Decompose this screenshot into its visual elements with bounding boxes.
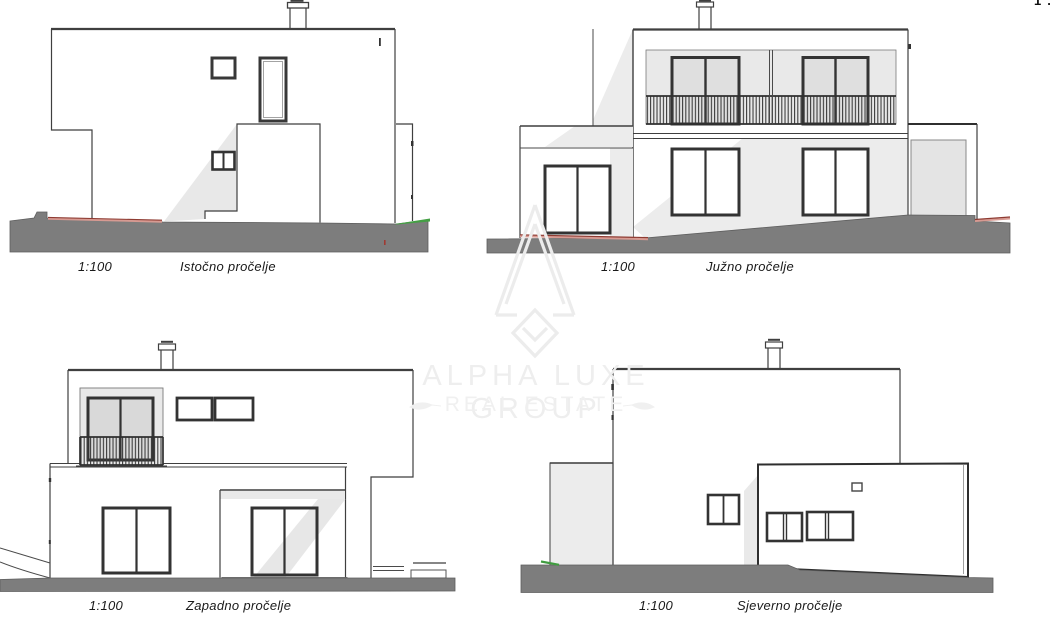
south-balcony-railing bbox=[646, 96, 896, 124]
east-double-window bbox=[213, 152, 235, 170]
elevation-sheet: { "sheet": { "type": "architectural-elev… bbox=[0, 0, 1064, 621]
west-title-label: Zapadno pročelje bbox=[186, 598, 291, 613]
south-title-label: Južno pročelje bbox=[706, 259, 794, 274]
west-porch bbox=[220, 490, 346, 578]
east-wall-ticks bbox=[379, 38, 414, 199]
elevation-south-drawing bbox=[480, 0, 1020, 258]
north-chimney bbox=[766, 340, 783, 369]
west-chimney bbox=[159, 342, 176, 370]
east-scale-label: 1:100 bbox=[78, 259, 112, 274]
elevation-west-drawing bbox=[0, 330, 470, 600]
west-window-lower bbox=[103, 508, 170, 573]
west-small-window-2 bbox=[215, 398, 253, 420]
east-wall-shadow bbox=[164, 124, 237, 222]
west-scale-label: 1:100 bbox=[89, 598, 123, 613]
south-left-wing bbox=[520, 126, 633, 238]
north-corner-shadow bbox=[744, 475, 758, 567]
north-title-label: Sjeverno pročelje bbox=[737, 598, 843, 613]
south-side-face-shading bbox=[593, 29, 633, 126]
south-chimney bbox=[697, 1, 714, 29]
east-chimney bbox=[288, 1, 309, 29]
south-scale-label: 1:100 bbox=[601, 259, 635, 274]
north-left-wing bbox=[550, 463, 613, 566]
west-small-window-1 bbox=[177, 398, 212, 420]
north-annex-window-1 bbox=[767, 513, 802, 541]
south-garage-wing bbox=[908, 44, 977, 219]
north-window-main bbox=[708, 495, 739, 524]
clipped-corner-text: 1. bbox=[1034, 0, 1057, 8]
east-small-window bbox=[212, 58, 235, 78]
south-window-lower-right bbox=[803, 149, 868, 215]
east-tall-window bbox=[260, 58, 286, 121]
west-balcony bbox=[76, 388, 167, 467]
west-terrain-lines bbox=[0, 548, 50, 578]
elevation-north-drawing bbox=[490, 330, 1010, 600]
east-title-label: Istočno pročelje bbox=[180, 259, 276, 274]
west-ground bbox=[0, 578, 455, 592]
north-scale-label: 1:100 bbox=[639, 598, 673, 613]
south-window-lower-left bbox=[672, 149, 739, 215]
elevation-east-drawing bbox=[0, 0, 460, 258]
north-annex-window-2 bbox=[807, 512, 853, 540]
